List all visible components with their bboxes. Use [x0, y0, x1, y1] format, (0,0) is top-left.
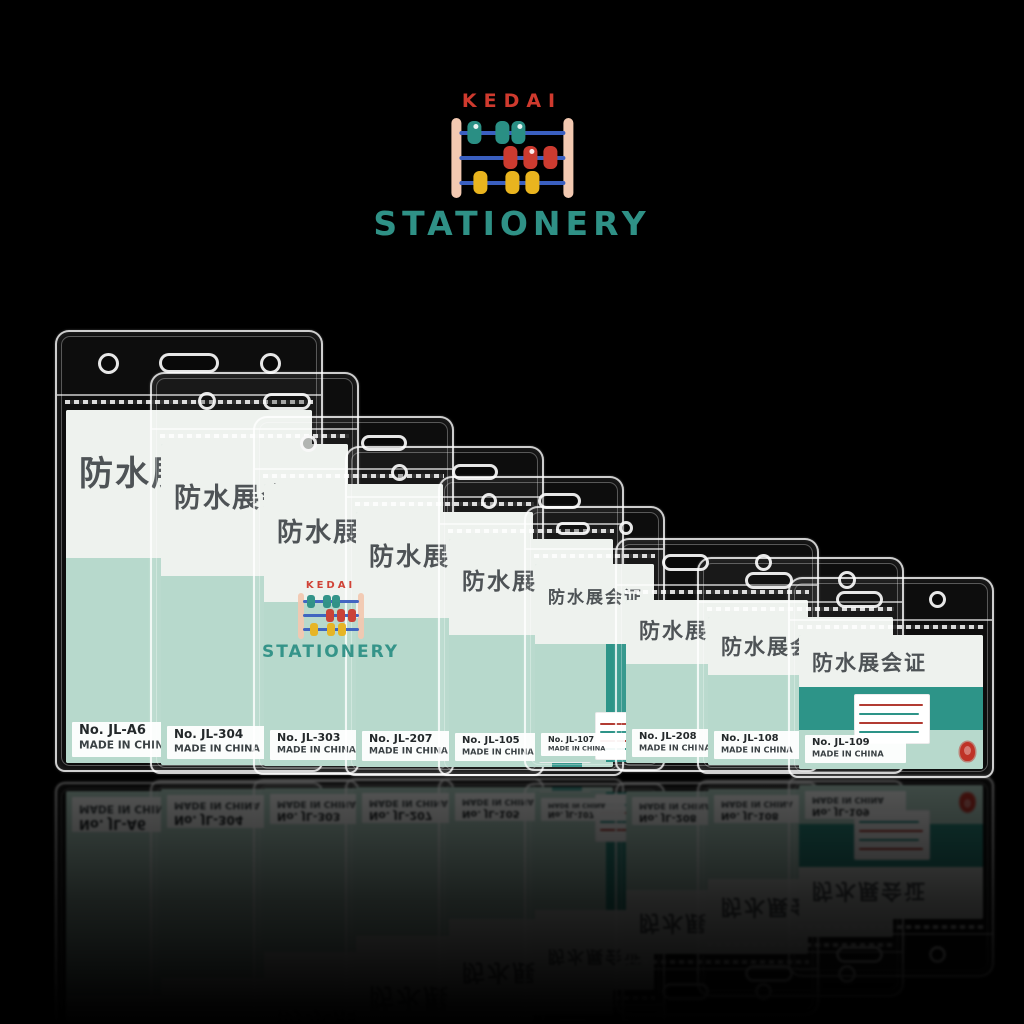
- made-in-text: MADE IN CHINA: [174, 743, 260, 754]
- abacus-bead: [348, 609, 356, 622]
- model-number-text: No. JL-109: [812, 737, 899, 749]
- abacus-bead: [307, 595, 315, 608]
- abacus-icon: [298, 593, 364, 639]
- model-label: No. JL-107MADE IN CHINA: [541, 733, 625, 756]
- abacus-bead: [327, 623, 335, 636]
- made-in-text: MADE IN CHINA: [721, 746, 793, 755]
- insert-title-area: 防水展会证: [799, 635, 983, 687]
- insert-title: 防水展会证: [799, 635, 983, 677]
- badge-slot-icon: [159, 353, 219, 373]
- lanyard-hole-icon: [481, 493, 497, 509]
- lanyard-hole-icon: [391, 464, 408, 481]
- badge-slot-icon: [745, 572, 793, 589]
- insert-card: 防水展会证No. JL-109MADE IN CHINA: [799, 635, 983, 769]
- badge-slot-icon: [263, 393, 311, 410]
- abacus-bead: [337, 609, 345, 622]
- model-number-text: No. JL-107: [548, 735, 618, 744]
- watermark-brand-subtitle-text: STATIONERY: [262, 642, 399, 662]
- reflection-fade: [0, 777, 1024, 1024]
- made-in-text: MADE IN CHINA: [812, 750, 884, 759]
- ziplock-seal: [798, 625, 984, 629]
- made-in-text: MADE IN CHINA: [369, 746, 448, 756]
- abacus-bead: [323, 595, 331, 608]
- abacus-bead: [332, 595, 340, 608]
- card-flap: [790, 579, 992, 621]
- product-photo: KEDAI STATIONERY 防水展会证No. JL-A6MADE IN C…: [0, 0, 1024, 1024]
- badge-slot-icon: [836, 591, 883, 608]
- lanyard-hole-icon: [198, 392, 216, 410]
- lanyard-hole-icon: [619, 521, 633, 535]
- watermark-brand-name-text: KEDAI: [306, 580, 355, 591]
- lanyard-hole-icon: [260, 353, 281, 374]
- lanyard-hole-icon: [300, 435, 317, 452]
- made-in-text: MADE IN CHINA: [548, 745, 605, 753]
- watermark-logo: KEDAI STATIONERY: [262, 580, 399, 662]
- red-stamp-icon: [960, 742, 975, 761]
- badge-slot-icon: [556, 522, 590, 535]
- lanyard-hole-icon: [98, 353, 119, 374]
- abacus-bead: [338, 623, 346, 636]
- model-label: No. JL-109MADE IN CHINA: [805, 735, 906, 763]
- badge-holder-card: 防水展会证No. JL-109MADE IN CHINA: [788, 577, 994, 778]
- abacus-bead: [326, 609, 334, 622]
- abacus-bead: [310, 623, 318, 636]
- lanyard-hole-icon: [929, 591, 946, 608]
- made-in-text: MADE IN CHINA: [462, 748, 534, 757]
